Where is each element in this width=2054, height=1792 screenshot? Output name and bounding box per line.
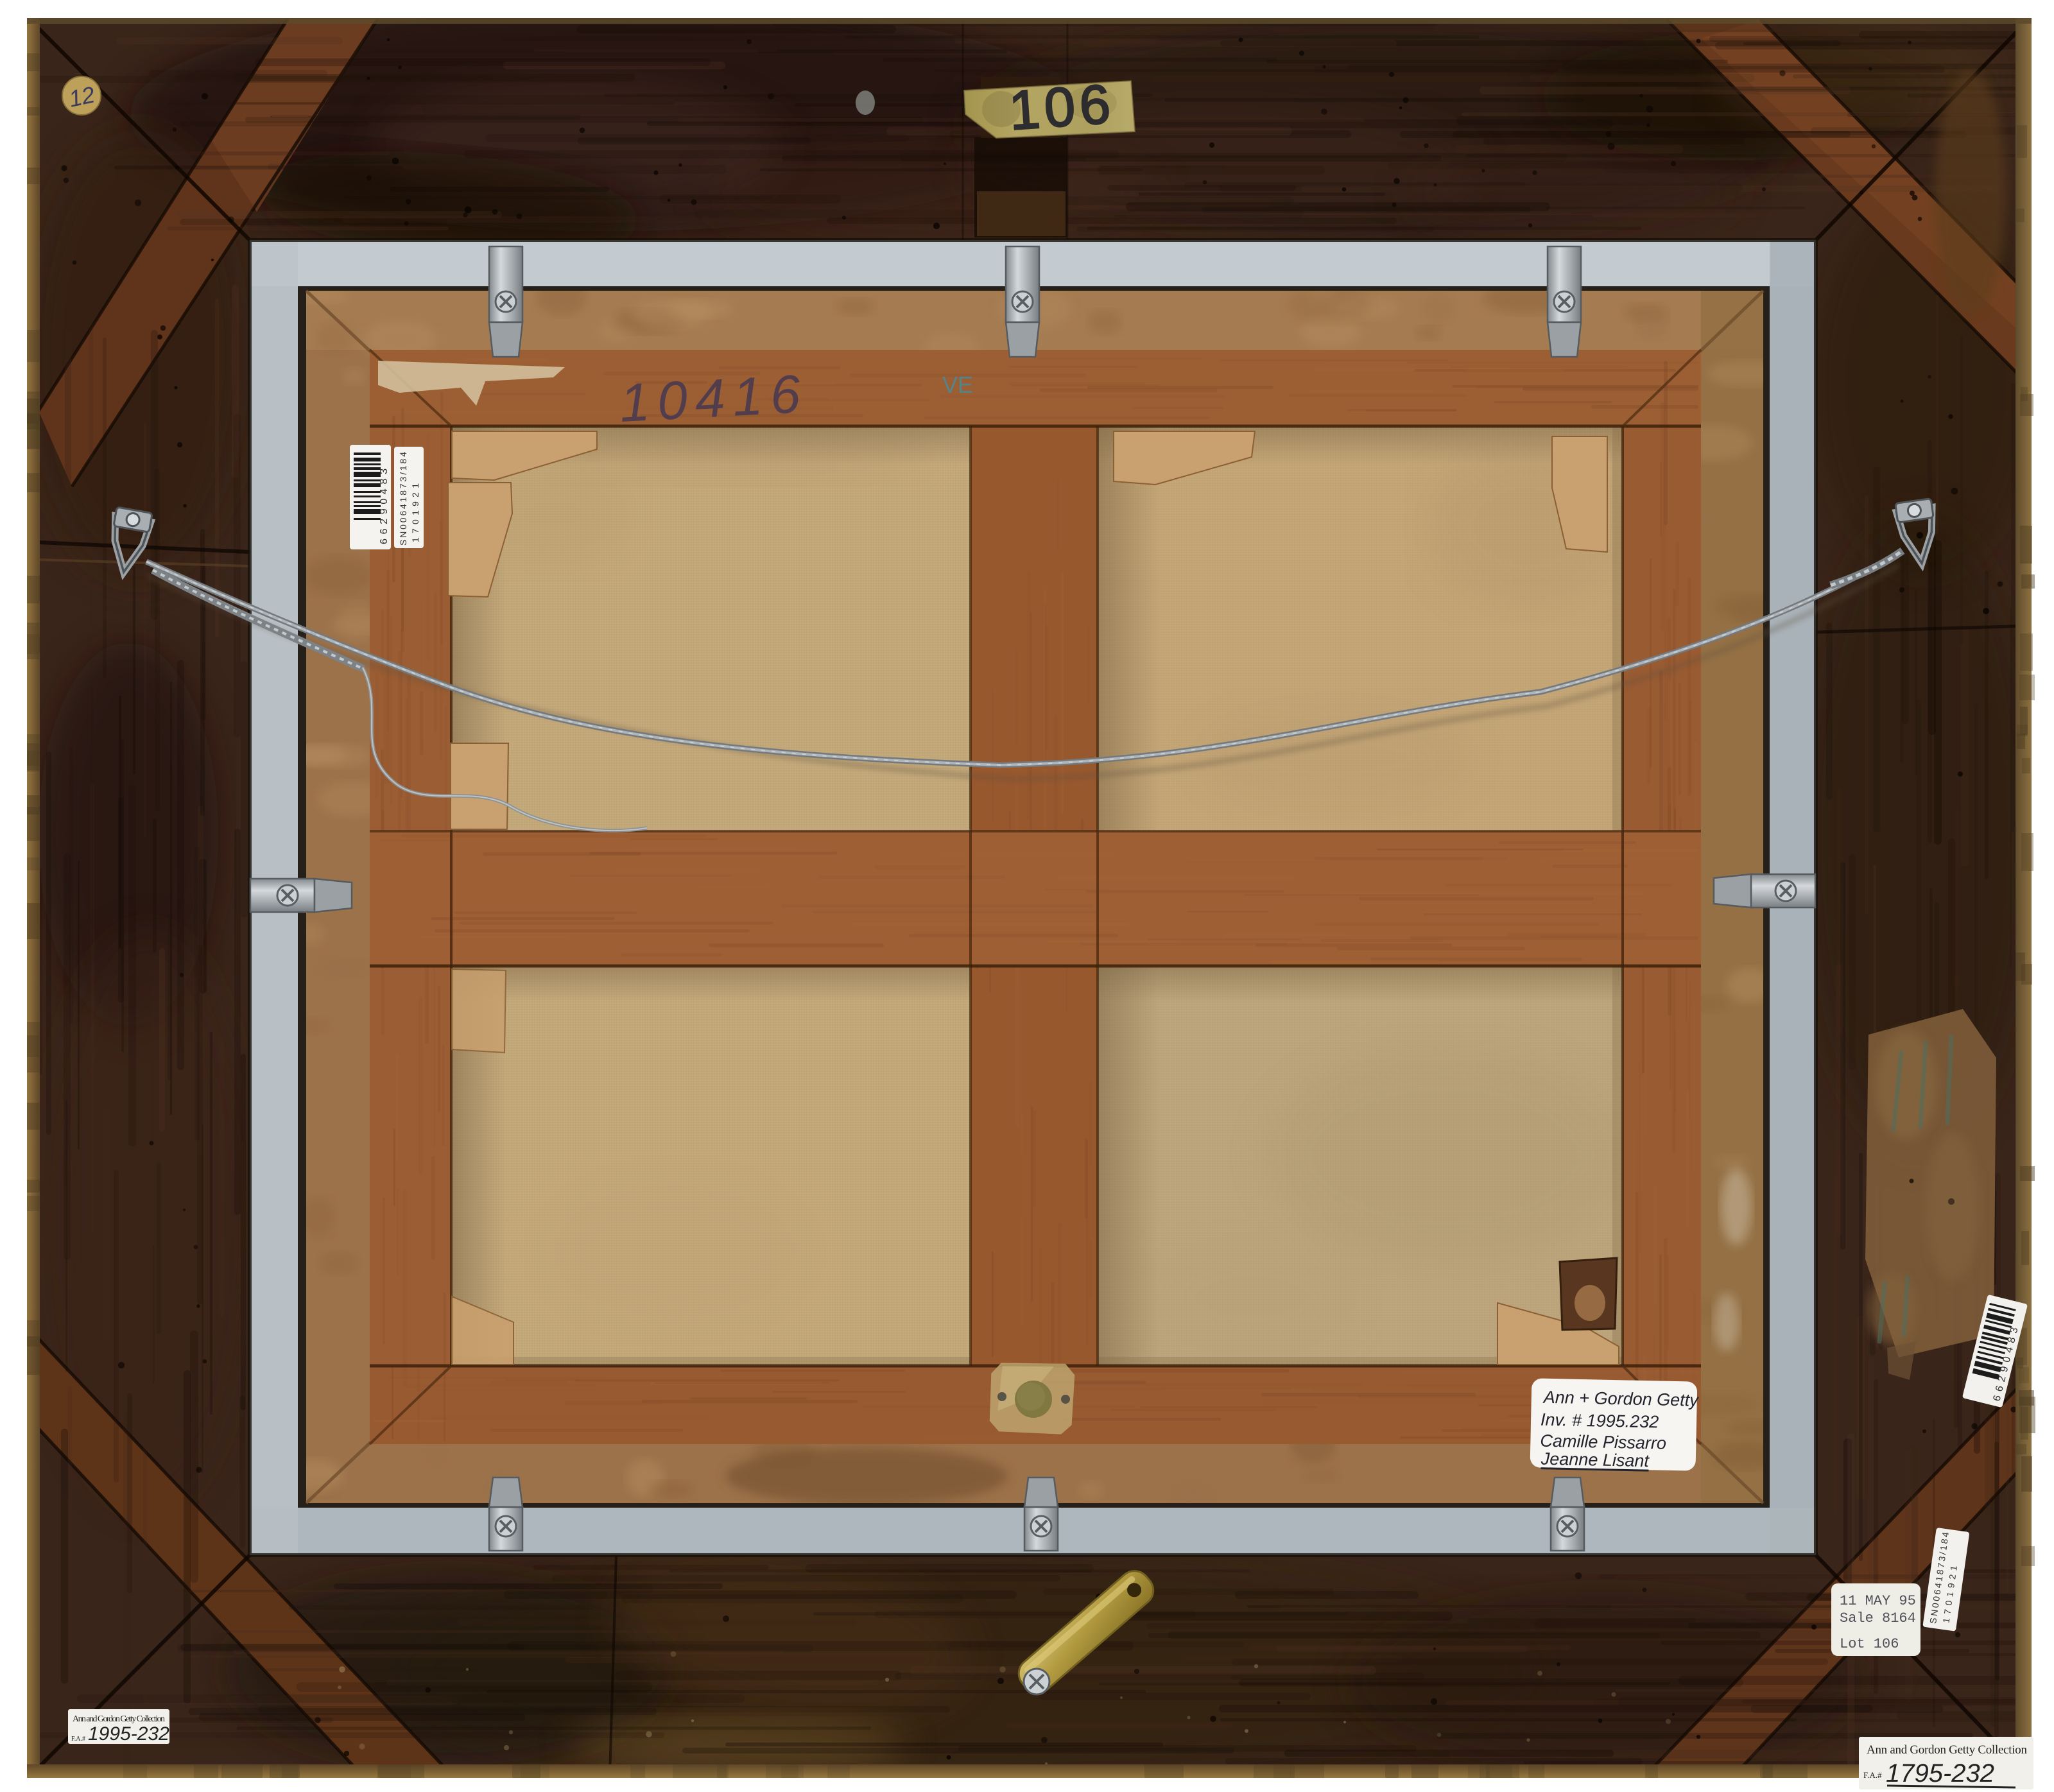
svg-text:F.A.#: F.A.# (1863, 1770, 1882, 1780)
svg-text:106: 106 (1007, 73, 1117, 142)
svg-text:Ann and Gordon Getty Collectio: Ann and Gordon Getty Collection (73, 1714, 165, 1724)
svg-text:VE: VE (942, 372, 973, 398)
svg-text:Lot 106: Lot 106 (1840, 1636, 1899, 1652)
svg-text:1995-232: 1995-232 (88, 1723, 169, 1745)
svg-text:Ann + Gordon Getty: Ann + Gordon Getty (1542, 1388, 1700, 1410)
svg-text:Sale 8164: Sale 8164 (1840, 1610, 1916, 1626)
svg-text:Inv. # 1995.232: Inv. # 1995.232 (1540, 1410, 1659, 1432)
svg-text:Jeanne Lisant: Jeanne Lisant (1540, 1449, 1650, 1471)
svg-text:12: 12 (66, 81, 97, 112)
svg-text:10416: 10416 (618, 363, 809, 433)
svg-text:F.A.#: F.A.# (71, 1736, 85, 1743)
svg-text:SN00641873/184: SN00641873/184 (398, 452, 408, 546)
svg-text:1795-232: 1795-232 (1886, 1759, 1994, 1788)
svg-text:11 MAY 95: 11 MAY 95 (1840, 1593, 1916, 1609)
svg-text:Ann and Gordon Getty Collectio: Ann and Gordon Getty Collection (1867, 1743, 2028, 1757)
